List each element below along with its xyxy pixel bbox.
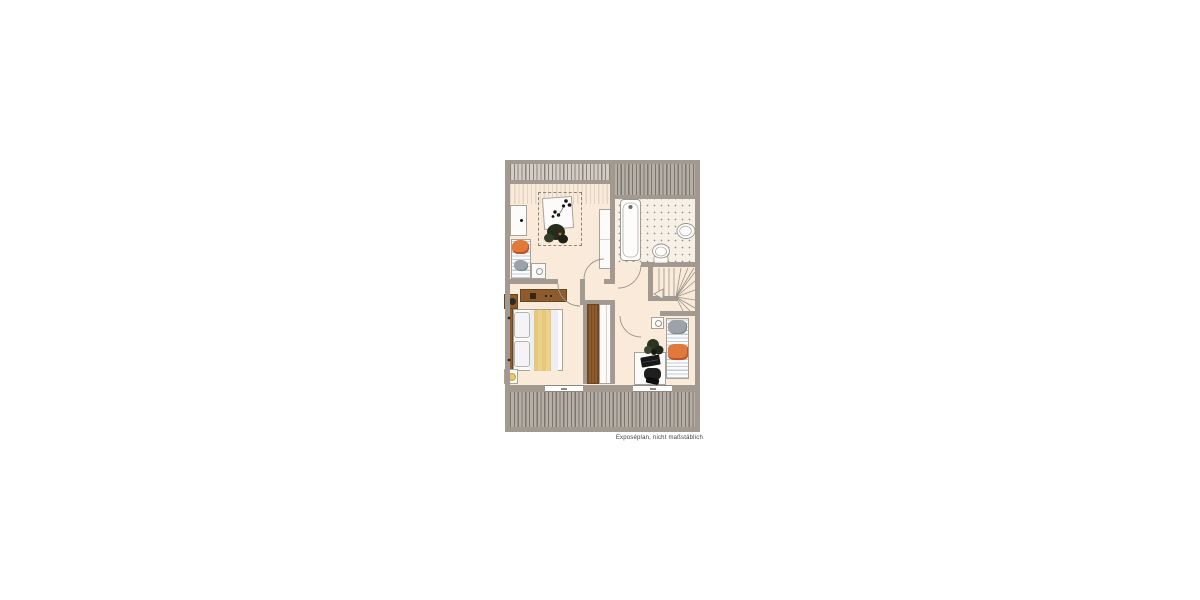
nightstand-plant xyxy=(509,298,516,305)
stool xyxy=(651,317,664,329)
wall-wardrobe-right xyxy=(611,304,615,384)
stool-mark xyxy=(655,320,662,327)
lounger-cushion xyxy=(512,240,529,254)
roof-hatch-top-left xyxy=(510,164,610,180)
wall-outer-top xyxy=(505,160,700,164)
side-table-mark xyxy=(536,268,543,275)
wall-right-room-top xyxy=(660,311,697,316)
cabinet xyxy=(510,205,527,236)
sideboard xyxy=(520,289,567,302)
window-right-room xyxy=(633,385,672,392)
wall-under-hatch-left xyxy=(510,180,613,184)
sideboard-knob-1 xyxy=(545,295,547,297)
wall-under-hatch-right xyxy=(613,195,695,199)
bathroom-tiled-floor xyxy=(613,199,695,262)
wall-base-band xyxy=(505,427,700,432)
wall-top-room-stub xyxy=(604,279,610,284)
side-table xyxy=(531,263,546,279)
roof-hatch-top-right xyxy=(613,164,695,195)
bed-duvet-yellow xyxy=(534,310,551,371)
bed-pillow-1 xyxy=(514,312,530,338)
daybed-cushion xyxy=(668,344,688,360)
builtin-wardrobe-divider xyxy=(606,305,607,383)
roof-hatch-bottom xyxy=(510,392,695,427)
table xyxy=(542,196,574,230)
wall-wardrobe-left xyxy=(583,300,587,384)
window-tick xyxy=(561,388,567,390)
daybed-pillow xyxy=(668,320,687,334)
builtin-wardrobe-white xyxy=(599,304,611,384)
cabinet-knob xyxy=(520,219,523,222)
floor-plan-page: Exposéplan, nicht maßstäblich xyxy=(0,0,1200,600)
wall-bedroom-top xyxy=(510,279,558,284)
sideboard-door xyxy=(530,293,536,299)
builtin-wardrobe-wood xyxy=(587,304,599,384)
wall-stairs-mid xyxy=(648,296,678,301)
wall-room-bath-divider xyxy=(610,164,615,284)
bed-pillow-2 xyxy=(514,341,530,367)
plan-caption: Exposéplan, nicht maßstäblich xyxy=(616,435,703,441)
bed-duvet xyxy=(530,310,558,371)
window-bedroom xyxy=(545,385,583,392)
desk xyxy=(634,352,666,385)
sideboard-knob-2 xyxy=(550,295,552,297)
window-tick xyxy=(650,388,656,390)
